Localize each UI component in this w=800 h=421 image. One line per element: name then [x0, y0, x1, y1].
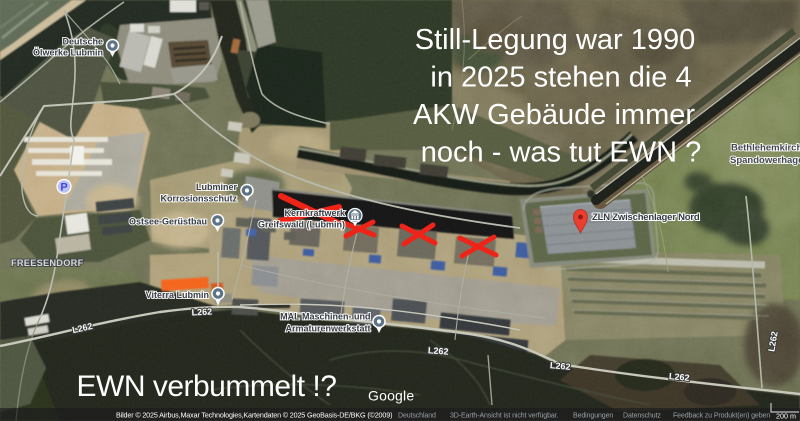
- svg-text:in 2025 stehen die 4: in 2025 stehen die 4: [430, 62, 691, 94]
- svg-text:noch - was tut EWN ?: noch - was tut EWN ?: [421, 137, 701, 169]
- svg-text:FREESENDORF: FREESENDORF: [11, 258, 84, 268]
- svg-text:EWN verbummelt !?: EWN verbummelt !?: [77, 370, 337, 403]
- svg-text:200 m: 200 m: [776, 412, 796, 421]
- svg-text:Datenschutz: Datenschutz: [623, 413, 661, 420]
- svg-text:3D-Earth-Ansicht ist nicht ver: 3D-Earth-Ansicht ist nicht verfügbar.: [450, 413, 559, 420]
- svg-text:L262: L262: [428, 345, 449, 356]
- svg-text:Ölwerke Lubmin: Ölwerke Lubmin: [33, 48, 103, 58]
- svg-text:Bethlehemkirche: Bethlehemkirche: [731, 143, 800, 154]
- svg-text:Still-Legung war 1990: Still-Legung war 1990: [415, 24, 696, 56]
- svg-text:Google: Google: [368, 388, 414, 404]
- svg-text:AKW Gebäude immer: AKW Gebäude immer: [413, 99, 695, 131]
- svg-text:L262: L262: [550, 360, 571, 372]
- svg-text:Ostsee-Gerüstbau: Ostsee-Gerüstbau: [129, 217, 207, 227]
- svg-text:MAL Maschinen- und: MAL Maschinen- und: [280, 312, 370, 322]
- svg-text:Bedingungen: Bedingungen: [573, 413, 613, 420]
- svg-text:Lubminer: Lubminer: [196, 182, 237, 192]
- svg-text:L262: L262: [191, 306, 212, 317]
- svg-text:Deutsche: Deutsche: [62, 37, 103, 47]
- svg-text:Armaturenwerkstatt: Armaturenwerkstatt: [285, 324, 370, 334]
- svg-text:Korrosionsschutz: Korrosionsschutz: [160, 194, 237, 204]
- svg-text:Viterra Lubmin: Viterra Lubmin: [146, 290, 209, 300]
- svg-text:Feedback zu Produkt(en) geben: Feedback zu Produkt(en) geben: [673, 413, 770, 420]
- svg-text:ZLN Zwischenlager Nord: ZLN Zwischenlager Nord: [592, 212, 700, 223]
- svg-text:P: P: [60, 182, 67, 194]
- svg-text:Spandowerhagen: Spandowerhagen: [730, 155, 800, 166]
- svg-text:Bilder © 2025 Airbus,Maxar Tec: Bilder © 2025 Airbus,Maxar Technologies,…: [116, 411, 392, 420]
- svg-text:Kernkraftwerk: Kernkraftwerk: [284, 208, 346, 218]
- svg-text:Deutschland: Deutschland: [398, 413, 436, 420]
- svg-text:L262: L262: [669, 371, 690, 383]
- svg-text:Greifswald (Lubmin): Greifswald (Lubmin): [258, 220, 345, 230]
